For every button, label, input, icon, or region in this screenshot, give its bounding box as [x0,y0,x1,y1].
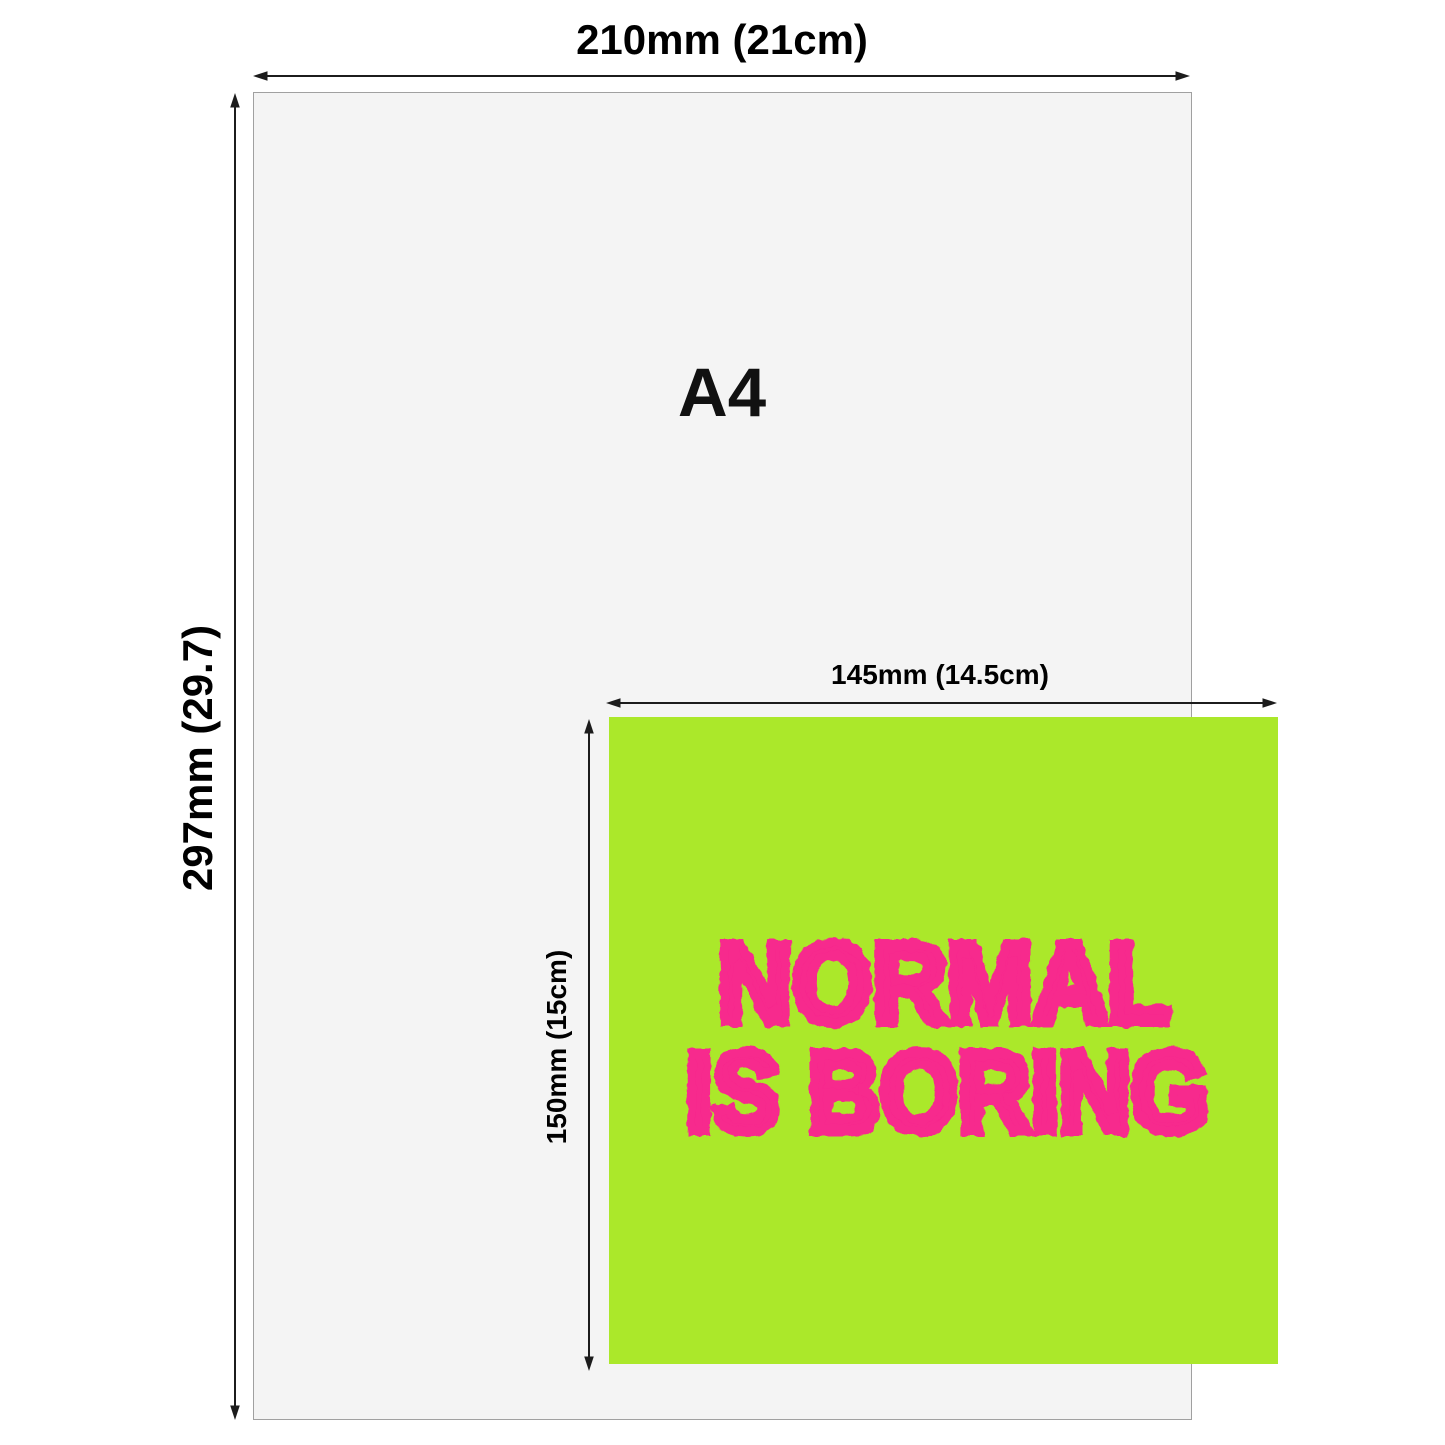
svg-text:NORMAL: NORMAL [718,920,1171,1046]
svg-text:IS BORING: IS BORING [685,1029,1209,1155]
